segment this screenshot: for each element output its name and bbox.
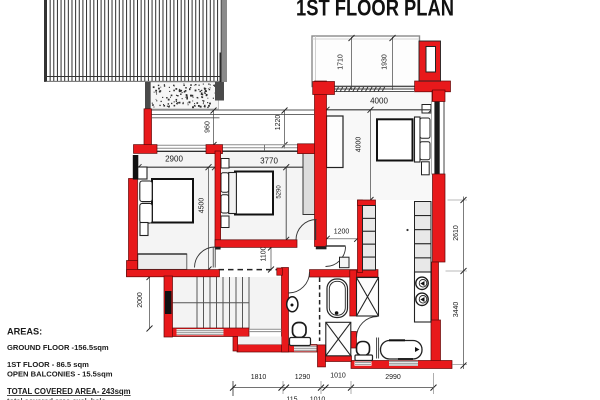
svg-text:AREAS:: AREAS: (7, 327, 42, 337)
svg-text:1010: 1010 (330, 373, 346, 380)
svg-text:1930: 1930 (382, 54, 389, 70)
svg-text:1010: 1010 (310, 397, 326, 400)
svg-text:5290: 5290 (277, 185, 283, 199)
svg-text:115: 115 (286, 397, 297, 400)
svg-text:2990: 2990 (385, 374, 401, 381)
svg-text:1200: 1200 (334, 229, 350, 236)
svg-text:1220: 1220 (275, 115, 282, 131)
svg-text:2900: 2900 (165, 155, 183, 164)
svg-text:1810: 1810 (251, 374, 267, 381)
svg-text:960: 960 (205, 121, 212, 133)
svg-text:4000: 4000 (370, 97, 388, 106)
svg-text:1290: 1290 (295, 374, 311, 381)
svg-text:TOTAL COVERED AREA- 243sqm: TOTAL COVERED AREA- 243sqm (7, 387, 131, 396)
svg-text:3440: 3440 (453, 302, 460, 318)
svg-text:OPEN BALCONIES - 15.5sqm: OPEN BALCONIES - 15.5sqm (7, 370, 113, 379)
svg-text:4000: 4000 (356, 137, 363, 153)
svg-text:1ST FLOOR - 86.5 sqm: 1ST FLOOR - 86.5 sqm (7, 360, 89, 369)
svg-text:2610: 2610 (453, 225, 460, 241)
svg-text:total covered area excl. balc: total covered area excl. balc (7, 397, 106, 400)
svg-text:1ST FLOOR PLAN: 1ST FLOOR PLAN (296, 0, 454, 21)
svg-text:4500: 4500 (199, 198, 206, 214)
svg-text:1100: 1100 (261, 246, 268, 261)
svg-text:1710: 1710 (338, 54, 345, 70)
svg-text:3770: 3770 (260, 157, 278, 166)
svg-text:GROUND FLOOR -156.5sqm: GROUND FLOOR -156.5sqm (7, 343, 109, 352)
svg-text:2000: 2000 (137, 292, 144, 308)
